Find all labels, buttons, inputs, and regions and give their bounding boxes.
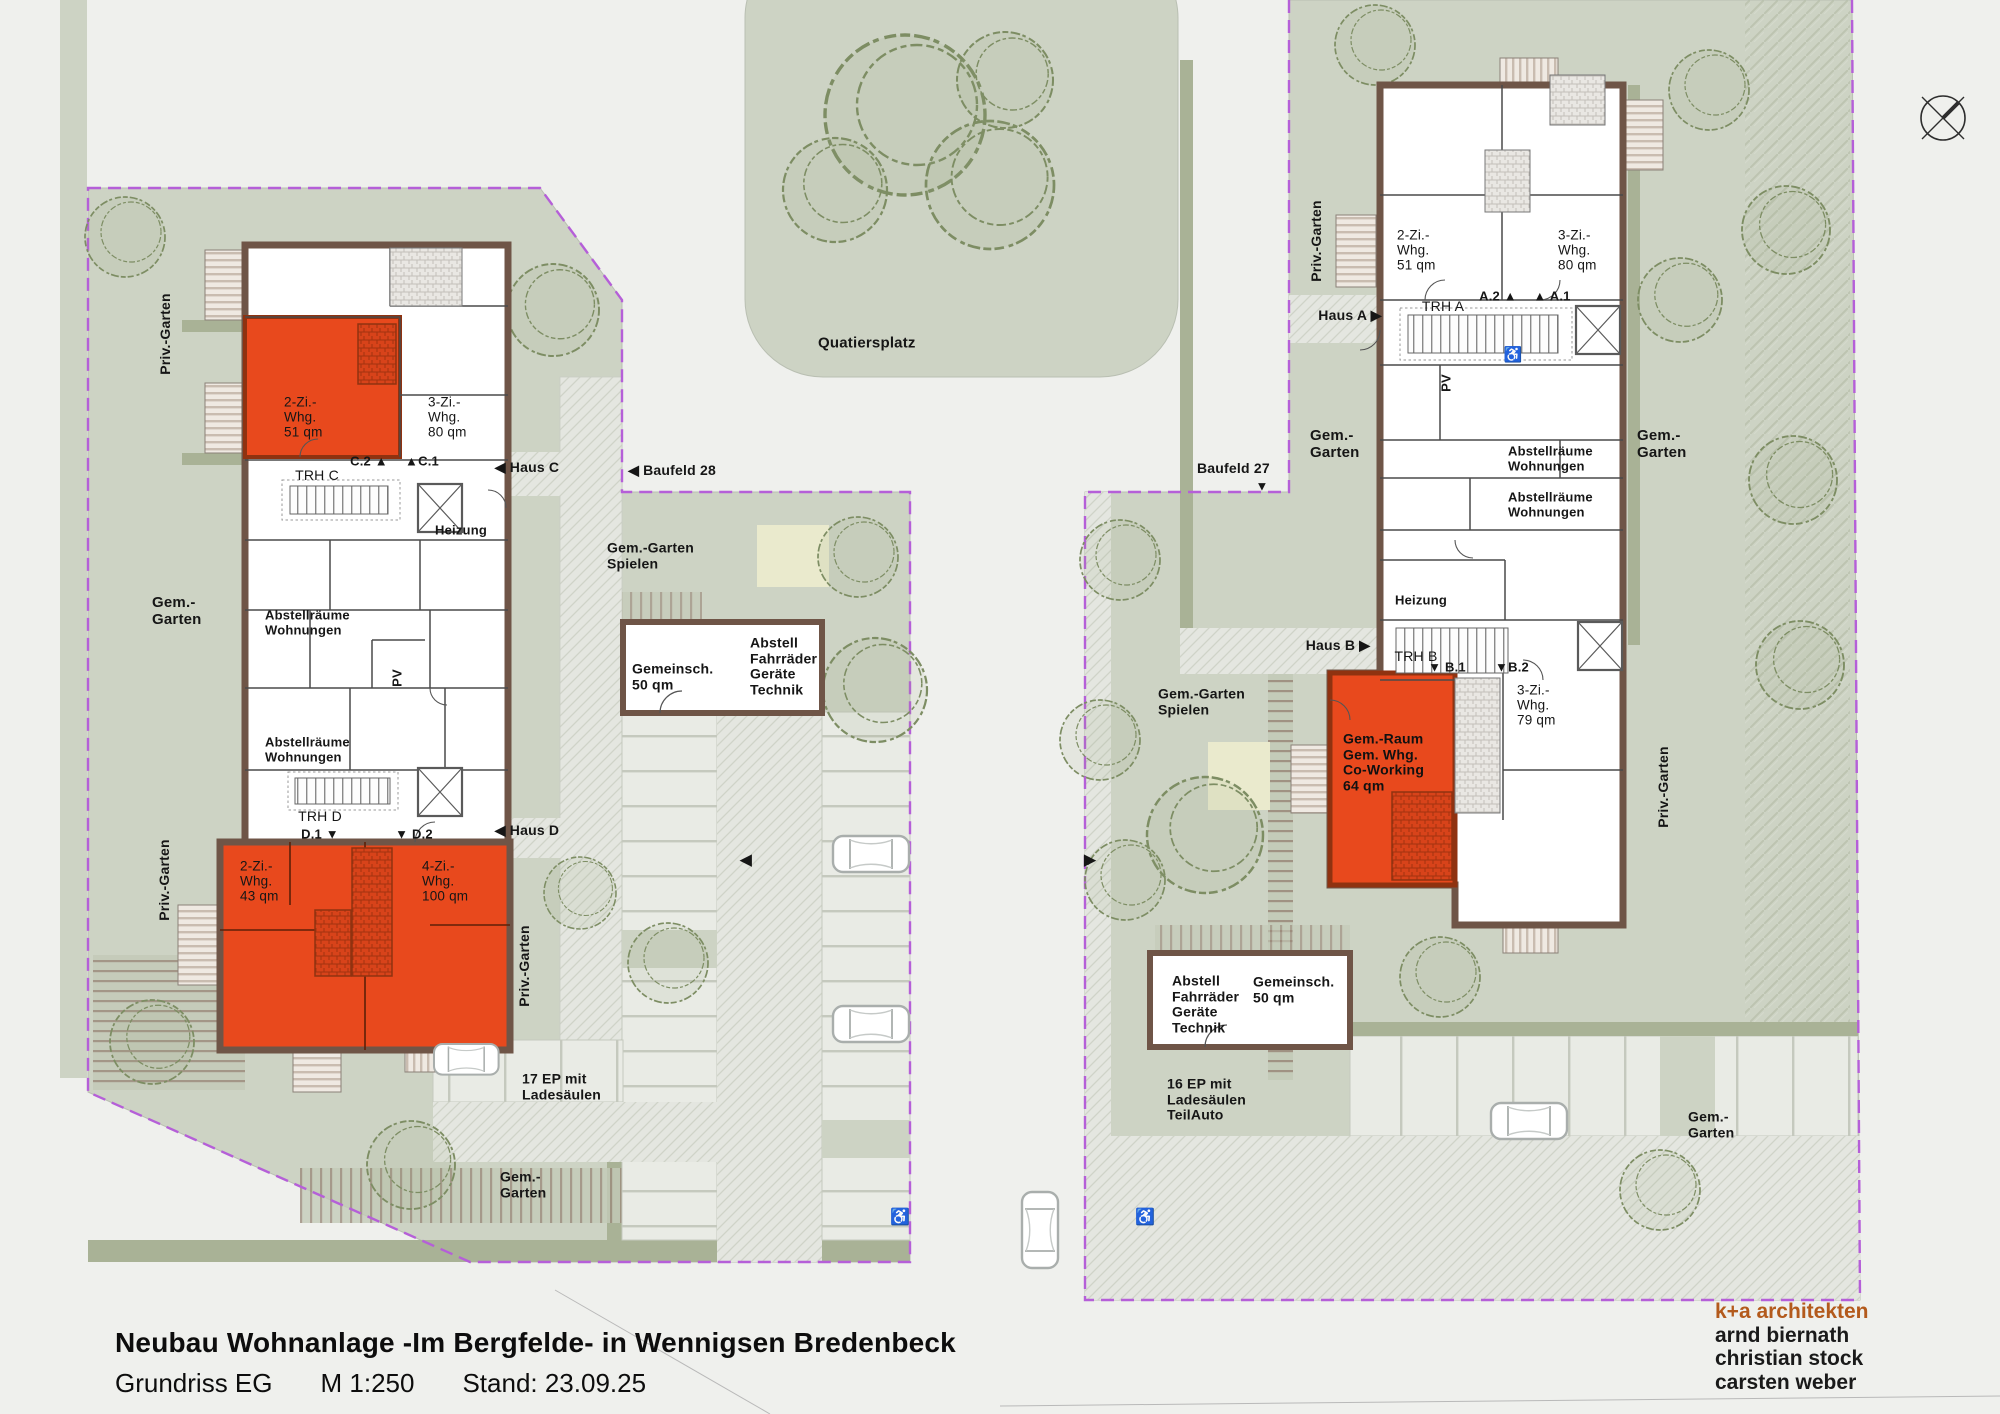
parking-drive-lane-west <box>717 712 822 1262</box>
architect-name-1: arnd biernath <box>1715 1324 1869 1348</box>
parking-drive-lane-east <box>1085 1136 1860 1300</box>
street-verge-west <box>60 0 87 1078</box>
architects-block: k+a architekten arnd biernath christian … <box>1715 1300 1869 1394</box>
plan-name: Grundriss EG <box>115 1368 273 1398</box>
plan-scale: M 1:250 <box>321 1368 415 1398</box>
title-block: Neubau Wohnanlage -Im Bergfelde- in Wenn… <box>115 1327 956 1399</box>
community-building-west <box>623 622 822 713</box>
sheet-title: Neubau Wohnanlage -Im Bergfelde- in Wenn… <box>115 1327 956 1359</box>
architect-name-2: christian stock <box>1715 1347 1869 1371</box>
architect-name-3: carsten weber <box>1715 1371 1869 1395</box>
architect-firm: k+a architekten <box>1715 1300 1869 1324</box>
plan-date: Stand: 23.09.25 <box>462 1368 646 1398</box>
parking-stalls-east <box>1350 1036 1858 1136</box>
parking-stall-column-2 <box>822 712 910 1240</box>
sheet-subtitle: Grundriss EGM 1:250Stand: 23.09.25 <box>115 1368 956 1399</box>
floor-plan-sheet: Priv.-GartenGem.- GartenPriv.-Garten2-Zi… <box>0 0 2000 1414</box>
community-building-east <box>1150 953 1350 1047</box>
site-plan-drawing <box>0 0 2000 1414</box>
